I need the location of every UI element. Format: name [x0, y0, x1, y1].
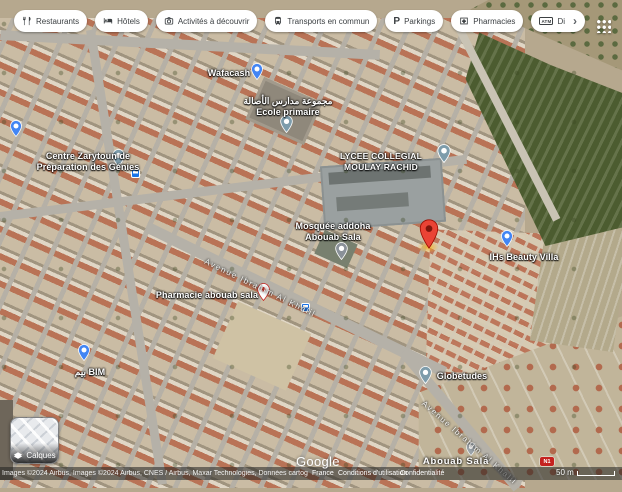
region-link[interactable]: France	[312, 470, 334, 477]
destination-marker[interactable]	[419, 219, 439, 249]
poi-label-mosque[interactable]: Mosquée addoha Abouab Sala	[296, 221, 371, 243]
road-number-badge: N1	[540, 457, 554, 466]
scale-bar	[577, 471, 615, 476]
building-roof	[336, 192, 409, 211]
poi-label-pharmacy[interactable]: Pharmacie abouab sala	[156, 290, 258, 301]
chip-label: Di	[557, 17, 565, 26]
privacy-link[interactable]: Confidentialité	[400, 470, 444, 477]
poi-pin[interactable]	[501, 230, 513, 247]
poi-label-ecole-french: Ecole primaire	[244, 107, 333, 118]
chevron-right-icon[interactable]: ›	[573, 15, 577, 27]
parking-icon: P	[393, 16, 400, 27]
poi-label-ecole[interactable]: مجموعة مدارس الأصالة Ecole primaire	[244, 96, 333, 118]
chip-label: Pharmacies	[473, 17, 515, 26]
chip-label: Parkings	[404, 17, 435, 26]
locality-label-abouab-sala[interactable]: Abouab Sala	[423, 456, 489, 467]
poi-label-ecole-arabic: مجموعة مدارس الأصالة	[244, 96, 333, 107]
chip-parkings[interactable]: P Parkings	[385, 10, 443, 32]
metro-icon	[273, 16, 283, 26]
shop-pin[interactable]	[78, 344, 90, 361]
layers-button-shade: Calques	[11, 443, 58, 463]
chip-transit[interactable]: Transports en commun	[265, 10, 377, 32]
terms-link[interactable]: Conditions d'utilisation	[338, 470, 407, 477]
layers-button[interactable]: Calques	[10, 417, 59, 464]
restaurant-icon	[22, 16, 32, 26]
layers-icon	[13, 451, 23, 461]
poi-label-globetudes[interactable]: Globetudes	[437, 371, 488, 382]
mosque-pin[interactable]	[335, 242, 348, 260]
poi-label-beauty-villa[interactable]: IHs Beauty Villa	[490, 252, 559, 263]
mosque-line1: Mosquée addoha	[296, 221, 371, 232]
chip-activities[interactable]: Activités à découvrir	[156, 10, 258, 32]
wafacash-pin[interactable]	[251, 63, 263, 80]
atm-icon: ATM	[539, 17, 553, 25]
layers-button-label: Calques	[26, 451, 55, 461]
lycee-line2: MOULAY RACHID	[340, 162, 422, 173]
poi-label-wafacash[interactable]: Wafacash	[208, 68, 250, 79]
chip-label: Hôtels	[117, 17, 140, 26]
apps-grid-icon[interactable]	[595, 18, 611, 33]
category-chips-bar: Restaurants Hôtels Activités à découvrir…	[14, 10, 585, 32]
attribution-text: Images ©2024 Airbus, Images ©2024 Airbus…	[2, 470, 308, 477]
pharmacy-icon	[459, 16, 469, 26]
centre-line1: Centre Zarytoun de	[37, 151, 140, 162]
school-pin[interactable]	[437, 144, 451, 163]
school-pin[interactable]	[419, 366, 432, 384]
bed-icon	[103, 16, 113, 26]
chip-pharmacies[interactable]: Pharmacies	[451, 10, 523, 32]
centre-line2: Préparation des Génies	[37, 162, 140, 173]
mosque-line2: Abouab Sala	[296, 232, 371, 243]
google-logo: Google	[296, 454, 340, 469]
poi-label-bim[interactable]: بيم BIM	[75, 367, 106, 378]
chip-label: Restaurants	[36, 17, 79, 26]
scale-label: 50 m	[556, 468, 574, 477]
lycee-line1: LYCEE COLLEGIAL	[340, 151, 422, 162]
chip-restaurants[interactable]: Restaurants	[14, 10, 87, 32]
chip-atm-truncated[interactable]: ATM Di ›	[531, 10, 585, 32]
poi-pin[interactable]	[10, 120, 22, 137]
chip-label: Transports en commun	[287, 17, 369, 26]
poi-label-centre[interactable]: Centre Zarytoun de Préparation des Génie…	[37, 151, 140, 173]
poi-label-lycee[interactable]: LYCEE COLLEGIAL MOULAY RACHID	[340, 151, 422, 173]
camera-icon	[164, 16, 174, 26]
scale-control: 50 m	[556, 468, 615, 477]
chip-hotels[interactable]: Hôtels	[95, 10, 148, 32]
chip-label: Activités à découvrir	[178, 17, 250, 26]
